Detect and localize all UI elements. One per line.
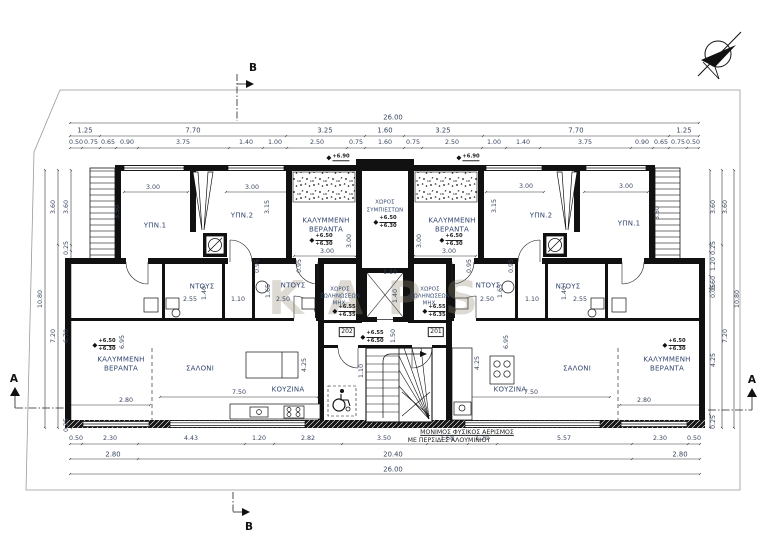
dim-label: 2.80 [637, 398, 651, 404]
level-diamond-icon: ◆ [92, 342, 97, 349]
dim-label: 26.00 [383, 115, 402, 122]
dim-label: 1.20 [252, 436, 266, 442]
dim-label: 3.60 [51, 200, 57, 214]
level-marker: ◆+6.55+6.50 [360, 330, 383, 344]
level-marker: ◆+6.50+6.30 [309, 233, 332, 247]
dim-label: 1.10 [231, 297, 245, 303]
dim-label: 3.60 [723, 200, 729, 214]
dim-label: 1.20 [711, 257, 717, 271]
dim-label: 1.10 [525, 297, 539, 303]
level-diamond-icon: ◆ [332, 308, 337, 315]
dim-label: 3.50 [655, 206, 661, 220]
level-diamond-icon: ◆ [360, 334, 365, 341]
level-diamond-icon: ◆ [309, 237, 314, 244]
dim-label: 1.65 [266, 284, 272, 298]
room-label-veranda-top-left: ΚΑΛΥΜΜΕΝΗ [302, 218, 349, 225]
dim-label: 1.00 [487, 140, 501, 146]
room-label-kitchen-left: ΚΟΥΖΙΝΑ [272, 387, 305, 394]
dim-label: 0.50 [69, 436, 83, 442]
room-label-veranda-bottom-right: ΚΑΛΥΜΜΕΝΗ [643, 357, 690, 364]
room-label-living-left: ΣΑΛΟΝΙ [186, 366, 214, 373]
dim-label: 7.50 [524, 390, 538, 396]
dim-label: 6.95 [504, 335, 510, 349]
dim-label: 7.20 [51, 329, 57, 343]
section-label-a-left: A [10, 374, 18, 385]
dim-label: 1.40 [202, 286, 208, 300]
dim-label: 0.75 [84, 140, 98, 146]
dim-label: 7.20 [723, 329, 729, 343]
level-marker: ◆+6.90 [456, 153, 479, 161]
dim-label: 3.00 [146, 185, 160, 191]
dim-label: 1.10 [359, 364, 365, 378]
section-label-b-top: B [249, 63, 257, 74]
room-label-mech-right: ΧΩΡΟΣ [420, 287, 439, 292]
level-diamond-icon: ◆ [456, 154, 461, 161]
section-label-a-right: A [748, 375, 756, 386]
level-marker: ◆+6.55+6.35 [332, 304, 355, 318]
dim-label: 0.75 [671, 140, 685, 146]
dim-label: 0.25 [64, 418, 70, 432]
section-label-b-bottom: B [245, 522, 253, 533]
dim-label: 0.50 [69, 140, 83, 146]
level-diamond-icon: ◆ [422, 308, 427, 315]
dim-label: 2.50 [310, 140, 324, 146]
level-diamond-icon: ◆ [326, 154, 331, 161]
dim-label: 5.57 [557, 436, 571, 442]
room-label-bedroom1-left: ΥΠΝ.1 [144, 223, 166, 230]
dim-label: 3.00 [619, 184, 633, 190]
room-label-bedroom2-left: ΥΠΝ.2 [231, 213, 253, 220]
note-ventilation: ΜΟΝΙΜΟΣ ΦΥΣΙΚΟΣ ΑΕΡΙΣΜΟΣ [420, 430, 514, 436]
dim-label: 0.05 [711, 284, 717, 298]
dim-label: 3.00 [347, 234, 353, 248]
dim-label: 3.75 [578, 140, 592, 146]
dim-label: 4.25 [711, 353, 717, 367]
staircase [366, 348, 432, 422]
level-marker: ◆+6.50+6.30 [662, 338, 685, 352]
dim-label: 1.60 [377, 128, 392, 135]
level-diamond-icon: ◆ [439, 237, 444, 244]
door-tag-201: 201 [428, 327, 444, 337]
watermark: KAPS [268, 271, 502, 325]
dim-label: 1.60 [378, 140, 392, 146]
veranda-hatch [293, 172, 477, 202]
dim-label: 2.80 [119, 398, 133, 404]
room-label-compressor: ΧΩΡΟΣ [375, 200, 394, 205]
dim-label: 0.50 [687, 436, 701, 442]
dim-label: 1.65 [498, 284, 504, 298]
dim-label: 1.40 [239, 140, 253, 146]
room-label-veranda-bottom-right: ΒΕΡΑΝΤΑ [650, 366, 684, 373]
room-label-kitchen-right: ΚΟΥΖΙΝΑ [494, 387, 527, 394]
room-label-living-right: ΣΑΛΟΝΙ [563, 366, 591, 373]
dim-label: 7.50 [232, 390, 246, 396]
room-label-mech-left: ΣΩΛΗΝΩΣΕΩΝ [320, 294, 360, 299]
dim-label: 3.50 [377, 436, 391, 442]
room-label-compressor: ΣΥΜΠΙΕΣΤΩΝ [367, 208, 404, 213]
room-label-mech-left: ΧΩΡΟΣ [330, 287, 349, 292]
room-label-mech-right: ΣΩΛΗΝΩΣΕΩΝ [410, 294, 450, 299]
dim-label: 3.25 [317, 128, 332, 135]
room-label-shower: ΝΤΟΥΣ [281, 283, 306, 290]
dim-label: 2.30 [653, 436, 667, 442]
vent-shaft-icon [203, 233, 567, 257]
dim-label: 0.75 [349, 140, 363, 146]
dim-label: 3.50 [115, 205, 121, 219]
dim-label: 3.00 [245, 185, 259, 191]
dim-label: 1.00 [268, 140, 282, 146]
dim-label: 0.90 [120, 140, 134, 146]
dim-label: 4.25 [302, 358, 308, 372]
level-marker: ◆+6.50+6.30 [92, 338, 115, 352]
dim-label: 2.82 [301, 436, 315, 442]
dim-label: 10.80 [38, 290, 44, 308]
dim-label: 0.25 [711, 415, 717, 429]
level-marker: ◆+6.50+6.30 [439, 233, 462, 247]
dim-label: 2.50 [276, 297, 290, 303]
dim-label: 3.15 [492, 199, 498, 213]
dim-label: 3.60 [64, 200, 70, 214]
dim-label: 0.75 [406, 140, 420, 146]
dim-label: 26.00 [383, 467, 402, 474]
dim-label: 2.30 [103, 436, 117, 442]
north-arrow-icon [698, 32, 741, 79]
dim-label: 0.65 [654, 140, 668, 146]
door-tag-202: 202 [339, 327, 355, 337]
dim-label: 2.55 [183, 297, 197, 303]
floor-plan: KAPS 26.00 1.25 7.70 3.25 1.60 3.25 7.70… [0, 0, 770, 560]
room-label-bedroom1-right: ΥΠΝ.1 [618, 221, 640, 228]
dim-label: 3.25 [435, 128, 450, 135]
dim-label: 1.25 [676, 128, 691, 135]
dim-label: 0.90 [635, 140, 649, 146]
dim-label: 0.65 [101, 140, 115, 146]
dim-label: 0.50 [686, 140, 700, 146]
room-label-veranda-bottom-left: ΒΕΡΑΝΤΑ [104, 366, 138, 373]
note-ventilation: ΜΕ ΠΕΡΣΙΔΕΣ ΑΛΟΥΜΙΝΙΟΥ [408, 438, 491, 444]
level-marker: ◆+6.50+6.30 [373, 215, 396, 229]
dim-label: 0.95 [509, 259, 515, 273]
dim-label: 2.50 [445, 140, 459, 146]
dim-label: 6.70 [64, 329, 70, 343]
dim-label: 3.00 [320, 249, 334, 255]
dim-label: 0.95 [255, 259, 261, 273]
dim-label: 10.80 [735, 290, 741, 308]
dim-label: 4.43 [184, 436, 198, 442]
dim-label: 1.10 [383, 270, 397, 276]
room-label-veranda-top-right: ΚΑΛΥΜΜΕΝΗ [428, 218, 475, 225]
dim-label: 0.25 [711, 241, 717, 255]
dim-label: 3.00 [417, 234, 423, 248]
dim-label: 0.95 [297, 259, 303, 273]
dim-label: 2.80 [672, 452, 687, 459]
level-marker: ◆+6.90 [326, 153, 349, 161]
dim-label: 1.50 [391, 329, 397, 343]
dim-label: 3.60 [711, 200, 717, 214]
dim-label: 20.40 [383, 452, 402, 459]
level-diamond-icon: ◆ [662, 342, 667, 349]
dim-label: 3.75 [176, 140, 190, 146]
dim-label: 2.50 [480, 297, 494, 303]
dim-label: 3.15 [265, 200, 271, 214]
wheelchair-icon [328, 386, 356, 416]
dim-label: 3.00 [519, 184, 533, 190]
dim-label: 2.80 [105, 452, 120, 459]
level-diamond-icon: ◆ [373, 219, 378, 226]
dim-label: 3.00 [442, 249, 456, 255]
dim-label: 1.40 [516, 140, 530, 146]
dim-label: 7.70 [568, 128, 583, 135]
dim-label: 1.40 [393, 289, 399, 303]
dim-label: 6.95 [120, 335, 126, 349]
dim-label: 0.25 [64, 241, 70, 255]
room-label-veranda-bottom-left: ΚΑΛΥΜΜΕΝΗ [97, 357, 144, 364]
room-label-bedroom2-right: ΥΠΝ.2 [530, 213, 552, 220]
dim-label: 1.40 [562, 286, 568, 300]
level-marker: ◆+6.55+6.35 [422, 304, 445, 318]
dim-label: 1.25 [77, 128, 92, 135]
dim-label: 2.55 [573, 297, 587, 303]
dim-label: 0.95 [467, 259, 473, 273]
dim-label: 4.25 [475, 356, 481, 370]
dim-label: 7.70 [185, 128, 200, 135]
